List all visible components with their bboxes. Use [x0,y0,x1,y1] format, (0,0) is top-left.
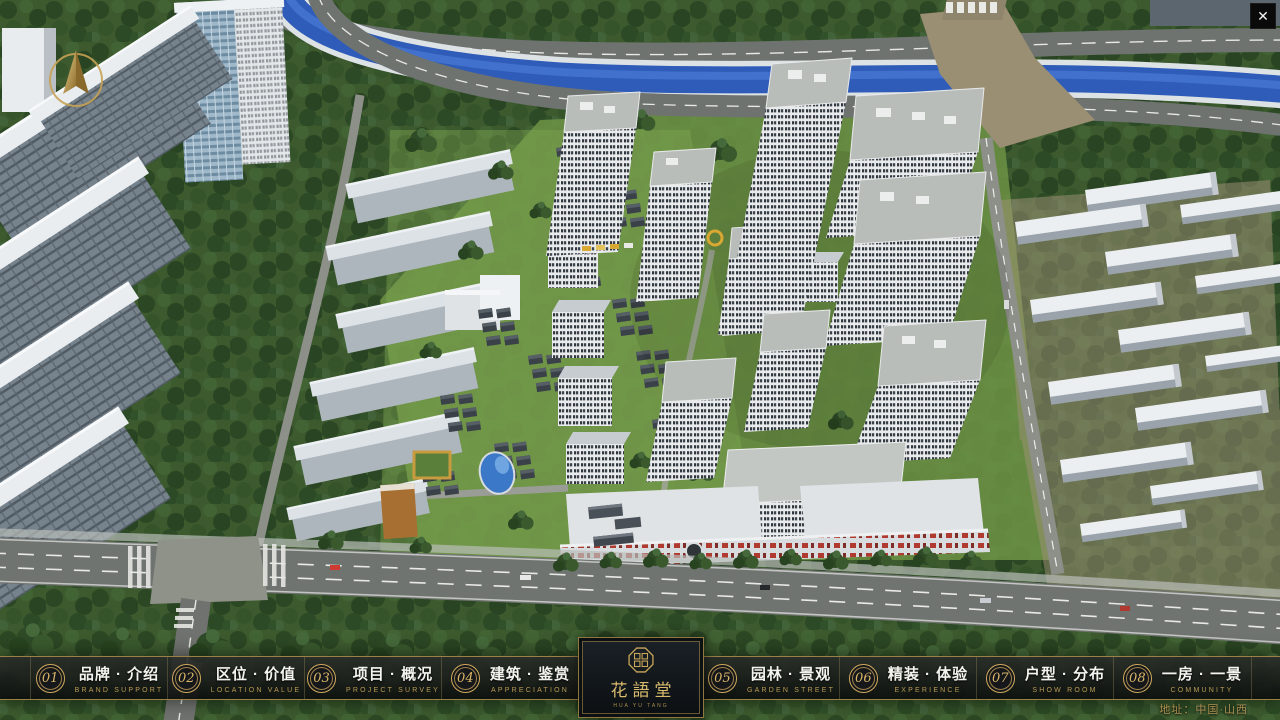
menu-sublabel: APPRECIATION [491,687,569,694]
presentation-window: ✕ 01 品牌 · 介绍 BRAND SUPPORT 02 区位 · 价值 LO… [0,0,1280,720]
menu-item-floorplans[interactable]: 07 户型 · 分布 SHOW ROOM [976,657,1114,699]
menu-sublabel: SHOW ROOM [1032,687,1097,694]
menu-number-badge: 08 [1123,664,1152,693]
menu-label: 户型 · 分布 [1025,663,1105,684]
menu-item-interior[interactable]: 06 精装 · 体验 EXPERIENCE [839,657,977,699]
logo-emblem-icon [628,647,654,673]
menu-sublabel: GARDEN STREET [747,687,835,694]
menu-sublabel: COMMUNITY [1171,687,1234,694]
logo-title: 花語堂 [606,676,677,701]
menu-number-badge: 04 [451,664,480,693]
menu-label: 品牌 · 介绍 [79,663,159,684]
menu-item-location[interactable]: 02 区位 · 价值 LOCATION VALUE [167,657,305,699]
menu-label: 项目 · 概况 [353,663,433,684]
menu-number-badge: 03 [307,664,336,693]
menu-label: 区位 · 价值 [216,663,296,684]
project-address: 地址：中国·山西 [1159,701,1248,717]
menu-number-badge: 07 [986,664,1015,693]
menu-number-badge: 01 [36,664,65,693]
menu-sublabel: LOCATION VALUE [211,687,301,694]
menu-label: 一房 · 一景 [1162,663,1242,684]
project-logo[interactable]: 花語堂 HUA YU TANG [578,637,704,718]
close-button[interactable]: ✕ [1250,3,1276,29]
menu-sublabel: BRAND SUPPORT [75,687,164,694]
menu-label: 园林 · 景观 [751,663,831,684]
menu-item-project[interactable]: 03 项目 · 概况 PROJECT SURVEY [304,657,442,699]
menu-number-badge: 05 [708,664,737,693]
menu-sublabel: EXPERIENCE [894,687,961,694]
aerial-render [0,0,1280,720]
menu-item-views[interactable]: 08 一房 · 一景 COMMUNITY [1113,657,1252,699]
aerial-map-viewport[interactable] [0,0,1280,720]
menu-item-architecture[interactable]: 04 建筑 · 鉴赏 APPRECIATION [441,657,579,699]
menu-number-badge: 02 [172,664,201,693]
menu-label: 建筑 · 鉴赏 [490,663,570,684]
menu-sublabel: PROJECT SURVEY [346,687,440,694]
menu-item-garden[interactable]: 05 园林 · 景观 GARDEN STREET [702,657,840,699]
menu-item-brand[interactable]: 01 品牌 · 介绍 BRAND SUPPORT [30,657,168,699]
menu-label: 精装 · 体验 [888,663,968,684]
logo-subtitle: HUA YU TANG [613,703,668,709]
menu-number-badge: 06 [849,664,878,693]
